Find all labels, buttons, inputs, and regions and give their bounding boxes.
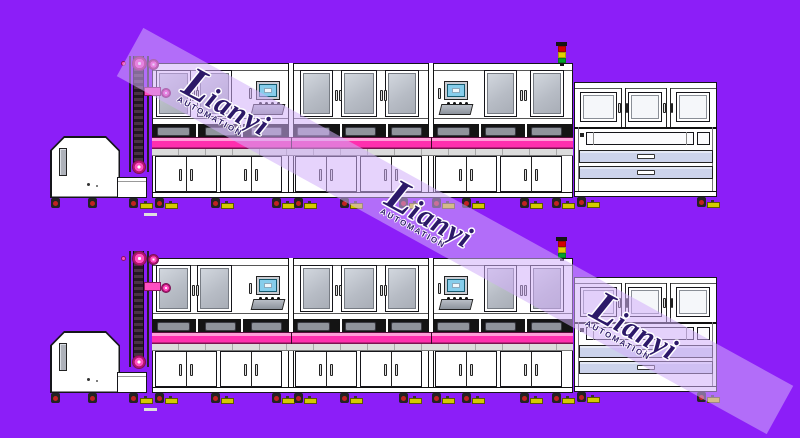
door-handle xyxy=(470,169,473,181)
door-handle xyxy=(330,364,333,376)
station-window-a xyxy=(580,92,617,122)
band-separator xyxy=(340,124,342,137)
door-handle xyxy=(255,364,258,376)
cover-slot xyxy=(345,322,376,331)
band-separator xyxy=(525,124,527,137)
door-handle xyxy=(671,103,674,113)
door-handle xyxy=(335,90,338,101)
cabinet-door-split xyxy=(391,352,392,387)
band-separator xyxy=(479,319,481,332)
feeder-slot-window xyxy=(59,343,67,371)
separator-dash xyxy=(144,408,157,411)
door-handle xyxy=(244,364,247,376)
module1-screen xyxy=(259,279,277,292)
band-separator xyxy=(386,319,388,332)
conveyor-joint-line xyxy=(291,332,293,345)
elevator-rail-left xyxy=(129,251,131,367)
door-handle xyxy=(663,298,666,308)
door-handle xyxy=(255,169,258,181)
conveyor-joint-line xyxy=(431,137,433,150)
cabinet-door-split xyxy=(186,157,187,192)
cover-slot xyxy=(437,322,470,331)
leveling-foot xyxy=(165,396,176,404)
caster-wheel xyxy=(51,393,60,403)
leveling-foot xyxy=(562,396,573,404)
station-slot-end-box xyxy=(697,132,710,145)
elevator-pulley-top-small xyxy=(148,254,159,265)
door-handle xyxy=(535,364,538,376)
module3-touch-monitor xyxy=(444,81,468,100)
caster-wheel xyxy=(462,393,471,403)
cover-slot xyxy=(205,322,236,331)
caster-wheel xyxy=(294,393,303,403)
door-handle xyxy=(395,364,398,376)
cover-slot xyxy=(485,322,516,331)
door-handle xyxy=(459,364,462,376)
caster-wheel xyxy=(432,393,441,403)
leveling-foot xyxy=(472,396,483,404)
station-base-line xyxy=(574,191,717,193)
drawing-canvas: Lianyi AUTOMATION Lianyi AUTOMATION Lian… xyxy=(0,0,800,438)
station-window-c xyxy=(676,92,710,122)
leveling-foot xyxy=(587,395,598,403)
cover-slot xyxy=(531,322,562,331)
station-mid-line xyxy=(574,127,717,129)
leveling-foot xyxy=(350,396,361,404)
module-boundary xyxy=(428,258,434,387)
cover-slot xyxy=(391,127,422,136)
door-handle xyxy=(524,90,527,101)
module2-window-a xyxy=(300,265,333,312)
door-handle xyxy=(384,90,387,101)
door-handle xyxy=(339,285,342,296)
door-handle xyxy=(244,169,247,181)
caster-wheel xyxy=(272,393,281,403)
band-separator xyxy=(196,124,198,137)
caster-wheel xyxy=(552,393,561,403)
door-handle xyxy=(459,169,462,181)
caster-wheel xyxy=(211,393,220,403)
band-separator xyxy=(525,319,527,332)
door-handle xyxy=(335,285,338,296)
leveling-foot xyxy=(221,396,232,404)
caster-wheel xyxy=(129,393,138,403)
feeder-slot-window xyxy=(59,148,67,176)
module-boundary xyxy=(428,63,434,192)
module3-window-b xyxy=(530,70,564,117)
conveyor-belt xyxy=(152,137,573,150)
station-window-c xyxy=(676,287,710,317)
station-slot xyxy=(586,132,694,145)
door-handle xyxy=(438,283,441,294)
door-handle xyxy=(520,90,523,101)
cover-slot xyxy=(391,322,422,331)
feeder-knob xyxy=(96,185,98,187)
feeder-table-shelf-line xyxy=(118,181,146,182)
leveling-foot xyxy=(282,396,293,404)
feeder-knob xyxy=(87,183,90,186)
module3-keyboard-tray xyxy=(439,299,474,310)
cover-slot xyxy=(157,322,190,331)
door-handle xyxy=(192,285,195,296)
band-separator xyxy=(241,319,243,332)
door-handle xyxy=(380,90,383,101)
module2-window-b xyxy=(341,265,377,312)
module1-keyboard-tray xyxy=(251,299,286,310)
feeder-knob xyxy=(96,380,98,382)
leveling-foot xyxy=(140,396,151,404)
door-handle xyxy=(190,169,193,181)
elevator-pulley-bottom xyxy=(132,355,146,369)
cover-slot xyxy=(531,127,562,136)
cabinet-door-split xyxy=(251,157,252,192)
door-handle xyxy=(179,169,182,181)
station-slot-cap xyxy=(593,132,594,145)
door-handle xyxy=(524,364,527,376)
elevator-rail-right xyxy=(147,251,149,367)
cabinet-door-split xyxy=(326,352,327,387)
cabinet-door-split xyxy=(251,352,252,387)
station-top-rail-line xyxy=(575,88,716,89)
leveling-foot xyxy=(409,396,420,404)
elevator-pulley-bottom xyxy=(132,160,146,174)
cabinet-door-split xyxy=(466,352,467,387)
signal-tower-pole xyxy=(560,63,564,66)
cabinet-door-split xyxy=(186,352,187,387)
cover-slot xyxy=(251,322,282,331)
cover-slot xyxy=(297,322,330,331)
station-latch xyxy=(580,133,584,137)
elevator-transfer-arm xyxy=(144,282,161,291)
band-separator xyxy=(196,319,198,332)
door-handle xyxy=(535,169,538,181)
cover-slot xyxy=(345,127,376,136)
door-handle xyxy=(190,364,193,376)
band-separator xyxy=(479,124,481,137)
door-handle xyxy=(671,298,674,308)
drawer-handle xyxy=(637,170,655,175)
module3-keyboard-tray xyxy=(439,104,474,115)
door-handle xyxy=(384,364,387,376)
door-handle xyxy=(618,103,621,113)
main-window-bottom-line xyxy=(153,313,572,314)
caster-wheel xyxy=(399,393,408,403)
module1-touch-monitor xyxy=(256,276,280,295)
module-boundary xyxy=(288,258,294,387)
door-handle xyxy=(339,90,342,101)
band-separator xyxy=(340,319,342,332)
feeder-table-shelf-line xyxy=(118,376,146,377)
station-window-b xyxy=(628,92,662,122)
cover-slot xyxy=(157,127,190,136)
module2-window-b xyxy=(341,70,377,117)
main-base-line xyxy=(152,387,573,389)
door-handle xyxy=(524,169,527,181)
station-slot-cap xyxy=(686,132,687,145)
door-handle xyxy=(626,103,629,113)
feeder-knob xyxy=(87,378,90,381)
door-handle xyxy=(179,364,182,376)
door-handle xyxy=(380,285,383,296)
drawer-handle xyxy=(637,154,655,159)
caster-wheel xyxy=(88,393,97,403)
cabinet-door-split xyxy=(531,352,532,387)
door-handle xyxy=(470,364,473,376)
inner-wheel-through-glass xyxy=(161,283,171,293)
elevator-chain xyxy=(133,251,144,365)
cabinet-door-split xyxy=(531,157,532,192)
door-handle xyxy=(249,283,252,294)
module2-window-c xyxy=(385,265,419,312)
cover-slot xyxy=(437,127,470,136)
module2-window-c xyxy=(385,70,419,117)
elevator-nub xyxy=(121,256,126,261)
cabinet-door-split xyxy=(466,157,467,192)
door-handle xyxy=(384,285,387,296)
conveyor-joint-line xyxy=(431,332,433,345)
caster-wheel xyxy=(520,393,529,403)
door-handle xyxy=(663,103,666,113)
module2-window-a xyxy=(300,70,333,117)
leveling-foot xyxy=(530,396,541,404)
module1-window-b xyxy=(197,265,232,312)
module3-touch-monitor xyxy=(444,276,468,295)
module3-window-a xyxy=(484,70,517,117)
leveling-foot xyxy=(442,396,453,404)
conveyor-belt xyxy=(152,332,573,345)
elevator-pulley-top xyxy=(132,251,147,266)
caster-wheel xyxy=(577,392,586,402)
module3-screen xyxy=(447,84,465,97)
door-handle xyxy=(319,364,322,376)
caster-wheel xyxy=(340,393,349,403)
cover-slot xyxy=(485,127,516,136)
leveling-foot xyxy=(304,396,315,404)
band-separator xyxy=(386,124,388,137)
module3-screen xyxy=(447,279,465,292)
caster-wheel xyxy=(155,393,164,403)
door-handle xyxy=(438,88,441,99)
door-handle xyxy=(196,285,199,296)
